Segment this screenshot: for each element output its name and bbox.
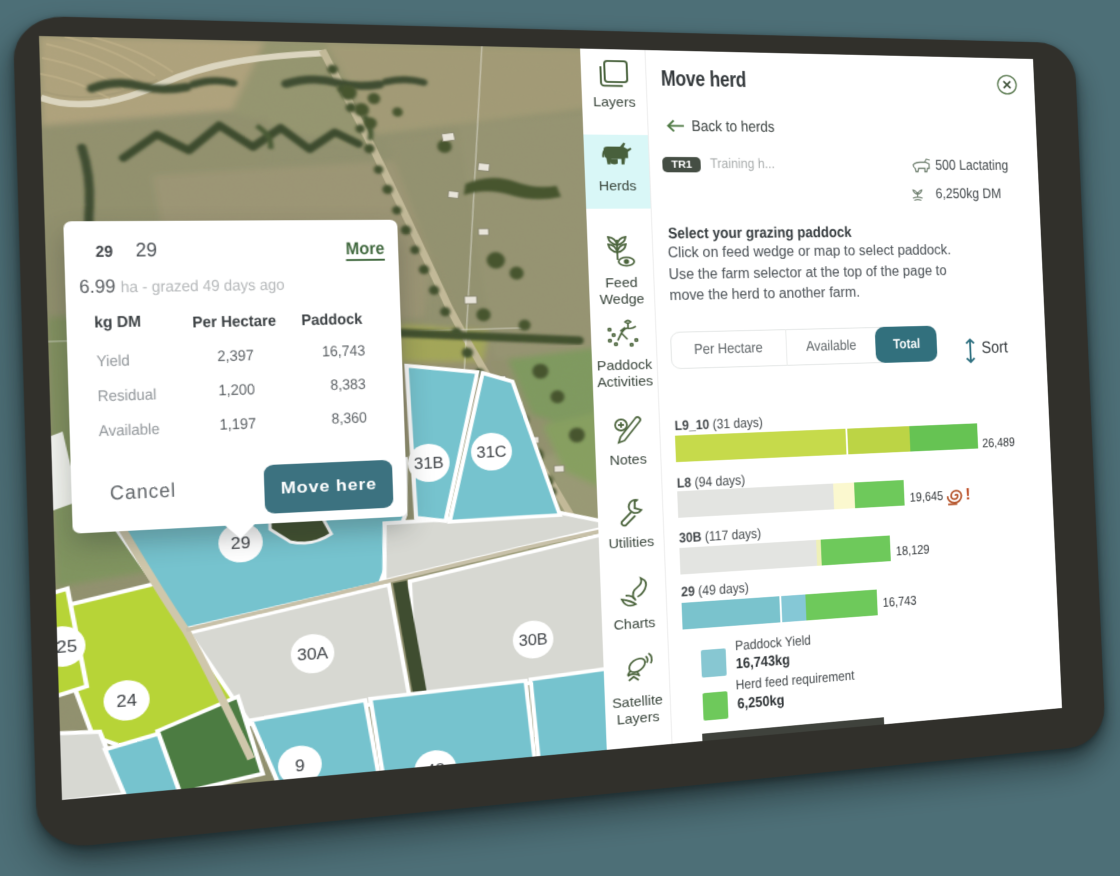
- svg-text:30A: 30A: [297, 644, 329, 664]
- svg-text:24: 24: [116, 691, 137, 711]
- svg-text:9: 9: [295, 756, 305, 775]
- svg-text:25: 25: [56, 637, 77, 657]
- svg-text:31B: 31B: [414, 454, 444, 473]
- svg-text:30B: 30B: [518, 630, 547, 649]
- svg-text:31C: 31C: [476, 443, 507, 462]
